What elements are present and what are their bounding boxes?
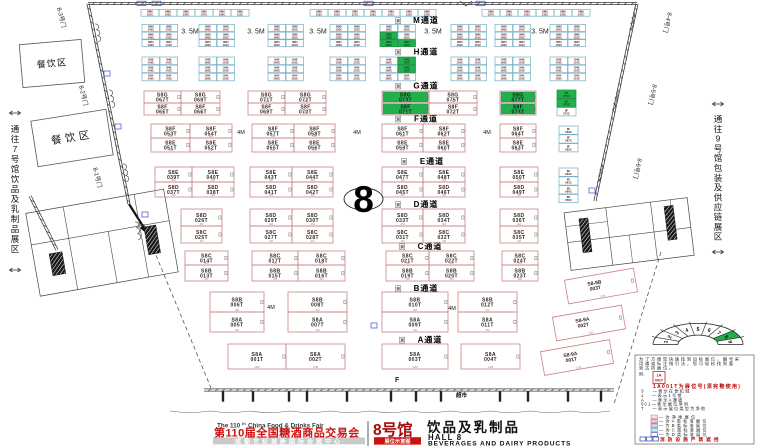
svg-text:4M: 4M	[517, 193, 522, 197]
svg-text:超市: 超市	[455, 391, 468, 399]
svg-text:150C: 150C	[555, 61, 562, 65]
svg-text:区: 区	[714, 232, 723, 242]
svg-text:4M: 4M	[271, 134, 276, 138]
svg-text:161C: 161C	[291, 28, 298, 32]
svg-text:190C: 190C	[204, 69, 211, 73]
svg-text:及: 及	[714, 183, 723, 193]
svg-text:展: 展	[11, 234, 20, 244]
svg-text:4M: 4M	[413, 328, 418, 332]
svg-text:190C: 190C	[204, 61, 211, 65]
svg-text:4M: 4M	[237, 130, 245, 136]
svg-text:141C: 141C	[165, 61, 172, 65]
svg-text:141C: 141C	[165, 43, 172, 47]
svg-text:150C: 150C	[555, 35, 562, 39]
svg-text:4M: 4M	[161, 99, 166, 103]
svg-text:181C: 181C	[403, 43, 410, 47]
svg-text:111C: 111C	[237, 13, 243, 17]
svg-text:4M: 4M	[442, 148, 447, 152]
svg-text:9: 9	[716, 134, 721, 144]
svg-text:181C: 181C	[403, 61, 410, 65]
svg-text:4M: 4M	[304, 111, 309, 115]
svg-text:001T: 001T	[251, 357, 264, 363]
svg-text:131C: 131C	[524, 13, 531, 17]
svg-text:150C: 150C	[555, 43, 562, 47]
svg-text:成都世纪城新国际会展中心: 成都世纪城新国际会展中心	[235, 437, 343, 445]
svg-text:D通道: D通道	[414, 199, 439, 209]
svg-text:119C: 119C	[370, 13, 377, 17]
svg-text:品: 品	[11, 184, 20, 194]
svg-text:121C: 121C	[388, 13, 395, 17]
svg-text:4M: 4M	[517, 178, 522, 182]
svg-text:160C: 160C	[273, 28, 280, 32]
svg-text:065C: 065C	[565, 147, 572, 151]
svg-text:到达的展位。: 到达的展位。	[639, 365, 675, 372]
svg-text:4M: 4M	[516, 99, 521, 103]
svg-text:1A: 1A	[656, 373, 661, 378]
svg-text:4M: 4M	[269, 239, 274, 243]
svg-text:4M: 4M	[404, 111, 409, 115]
svg-text:G通道: G通道	[413, 81, 438, 91]
svg-text:129C: 129C	[506, 13, 513, 17]
svg-text:191C: 191C	[518, 77, 525, 81]
svg-text:3. 5M: 3. 5M	[181, 29, 199, 36]
svg-text:190C: 190C	[204, 35, 211, 39]
svg-text:151C: 151C	[474, 77, 481, 81]
svg-text:4M: 4M	[211, 178, 216, 182]
svg-text:151C: 151C	[474, 43, 481, 47]
svg-text:150C: 150C	[456, 77, 463, 81]
svg-text:4M: 4M	[265, 111, 270, 115]
svg-text:4M: 4M	[172, 178, 177, 182]
svg-text:4M: 4M	[200, 222, 205, 226]
svg-text:191C: 191C	[222, 69, 229, 73]
svg-text:190C: 190C	[500, 77, 507, 81]
svg-text:181C: 181C	[403, 69, 410, 73]
svg-text:131C: 131C	[353, 77, 360, 81]
svg-text:3. 5M: 3. 5M	[247, 29, 265, 36]
svg-text:4M: 4M	[406, 277, 411, 281]
svg-text:131C: 131C	[353, 28, 360, 32]
svg-text:150C: 150C	[456, 28, 463, 32]
svg-text:4M: 4M	[516, 148, 521, 152]
svg-text:4M: 4M	[172, 193, 177, 197]
svg-text:4M: 4M	[517, 239, 522, 243]
svg-text:151C: 151C	[573, 43, 580, 47]
svg-text:4M: 4M	[517, 222, 522, 226]
svg-text:品: 品	[11, 224, 20, 234]
svg-text:190C: 190C	[204, 43, 211, 47]
svg-text:饮: 饮	[11, 174, 20, 184]
svg-text:装: 装	[714, 173, 723, 183]
svg-text:190C: 190C	[500, 28, 507, 32]
svg-text:131C: 131C	[353, 61, 360, 65]
svg-text:4M: 4M	[304, 99, 309, 103]
svg-text:190C: 190C	[500, 43, 507, 47]
svg-text:4M: 4M	[483, 130, 491, 136]
svg-text:4M: 4M	[450, 277, 455, 281]
svg-text:180C: 180C	[385, 43, 392, 47]
svg-text:113C: 113C	[316, 13, 323, 17]
svg-text:067C: 067C	[565, 139, 572, 143]
svg-text:069C: 069C	[565, 130, 572, 134]
svg-text:190C: 190C	[500, 35, 507, 39]
svg-text:160C: 160C	[273, 77, 280, 81]
svg-text:H通道: H通道	[414, 47, 439, 57]
svg-text:4M: 4M	[161, 111, 166, 115]
svg-text:4M: 4M	[267, 305, 275, 311]
svg-text:往: 往	[714, 124, 723, 134]
svg-text:4M: 4M	[311, 222, 316, 226]
svg-text:4M: 4M	[316, 328, 321, 332]
svg-text:151C: 151C	[573, 61, 580, 65]
svg-text:191C: 191C	[518, 61, 525, 65]
svg-text:4M: 4M	[199, 111, 204, 115]
svg-text:4M: 4M	[516, 111, 521, 115]
svg-text:第110届全国糖酒商品交易会: 第110届全国糖酒商品交易会	[214, 426, 360, 440]
svg-text:150C: 150C	[456, 43, 463, 47]
svg-text:5: 5	[697, 327, 700, 333]
svg-text:191C: 191C	[222, 43, 229, 47]
svg-text:馆: 馆	[11, 164, 20, 174]
svg-text:12M: 12M	[313, 365, 319, 369]
svg-text:058C: 058C	[565, 198, 572, 202]
svg-text:137C: 137C	[578, 13, 585, 17]
svg-text:4M: 4M	[311, 193, 316, 197]
svg-text:区: 区	[11, 244, 20, 254]
svg-text:130C: 130C	[335, 35, 342, 39]
svg-text:130C: 130C	[335, 28, 342, 32]
svg-text:131C: 131C	[353, 35, 360, 39]
svg-text:4M: 4M	[442, 193, 447, 197]
svg-text:往: 往	[11, 134, 20, 144]
svg-text:190C: 190C	[500, 61, 507, 65]
svg-text:190C: 190C	[204, 77, 211, 81]
svg-text:161C: 161C	[291, 77, 298, 81]
svg-text:135C: 135C	[560, 13, 567, 17]
svg-text:4M: 4M	[313, 134, 318, 138]
svg-text:133C: 133C	[542, 13, 549, 17]
svg-text:馆: 馆	[714, 153, 723, 163]
svg-text:8号馆: 8号馆	[373, 420, 413, 439]
svg-text:150C: 150C	[555, 28, 562, 32]
svg-text:063C: 063C	[565, 172, 572, 176]
svg-text:制: 制	[11, 214, 20, 224]
svg-text:150C: 150C	[456, 35, 463, 39]
svg-text:4M: 4M	[442, 134, 447, 138]
svg-text:4M: 4M	[269, 222, 274, 226]
svg-text:F: F	[395, 377, 400, 384]
svg-text:181C: 181C	[403, 28, 410, 32]
svg-text:3. 5M: 3. 5M	[309, 29, 327, 36]
svg-text:130C: 130C	[335, 69, 342, 73]
svg-text:及: 及	[11, 194, 20, 204]
svg-text:4M: 4M	[311, 239, 316, 243]
svg-text:150C: 150C	[555, 69, 562, 73]
svg-text:161C: 161C	[291, 69, 298, 73]
svg-text:131C: 131C	[353, 69, 360, 73]
svg-text:191C: 191C	[518, 28, 525, 32]
svg-text:7: 7	[13, 144, 18, 154]
svg-text:150C: 150C	[555, 77, 562, 81]
svg-text:001T: 001T	[655, 379, 664, 383]
svg-text:4M: 4M	[313, 148, 318, 152]
svg-text:191C: 191C	[222, 61, 229, 65]
svg-text:140C: 140C	[147, 35, 154, 39]
svg-text:例：: 例：	[639, 371, 647, 377]
svg-text:180C: 180C	[385, 28, 392, 32]
svg-text:151C: 151C	[573, 77, 580, 81]
svg-text:链: 链	[714, 212, 723, 222]
svg-text:th: th	[242, 421, 246, 426]
svg-text:151C: 151C	[474, 69, 481, 73]
svg-text:127C: 127C	[488, 13, 495, 17]
svg-text:141C: 141C	[165, 77, 172, 81]
svg-text:130C: 130C	[335, 61, 342, 65]
svg-text:002T: 002T	[309, 357, 322, 363]
svg-text:150C: 150C	[456, 61, 463, 65]
svg-text:供: 供	[714, 192, 723, 202]
svg-text:12M: 12M	[412, 365, 418, 369]
svg-text:通: 通	[11, 124, 20, 134]
svg-text:4M: 4M	[265, 99, 270, 103]
svg-text:151C: 151C	[474, 28, 481, 32]
svg-text:161C: 161C	[291, 61, 298, 65]
svg-text:4M: 4M	[269, 193, 274, 197]
svg-text:160C: 160C	[273, 35, 280, 39]
svg-text:180C: 180C	[385, 69, 392, 73]
svg-text:160C: 160C	[273, 43, 280, 47]
svg-text:4M: 4M	[271, 148, 276, 152]
svg-text:073C: 073C	[563, 103, 570, 107]
svg-text:4M: 4M	[451, 111, 456, 115]
svg-text:E通道: E通道	[420, 156, 444, 166]
svg-text:号: 号	[714, 143, 723, 153]
svg-text:4M: 4M	[311, 178, 316, 182]
svg-text:107C: 107C	[201, 13, 208, 17]
svg-text:117C: 117C	[352, 13, 359, 17]
svg-text:4M: 4M	[273, 277, 278, 281]
svg-text:181C: 181C	[403, 77, 410, 81]
svg-text:180C: 180C	[385, 77, 392, 81]
svg-text:4M: 4M	[205, 277, 210, 281]
svg-text:181C: 181C	[403, 35, 410, 39]
svg-text:号: 号	[11, 154, 20, 164]
svg-text:191C: 191C	[222, 28, 229, 32]
svg-text:191C: 191C	[518, 69, 525, 73]
svg-text:M通道: M通道	[413, 15, 439, 25]
svg-text:展: 展	[714, 222, 723, 232]
svg-text:包: 包	[714, 163, 723, 173]
svg-text:4M: 4M	[486, 328, 491, 332]
svg-text:4M: 4M	[516, 134, 521, 138]
svg-text:4M: 4M	[169, 148, 174, 152]
svg-text:4M: 4M	[200, 239, 205, 243]
svg-text:4M: 4M	[320, 277, 325, 281]
svg-text:3. 5M: 3. 5M	[531, 29, 549, 36]
svg-text:4M: 4M	[442, 239, 447, 243]
svg-text:3. 5M: 3. 5M	[424, 29, 442, 36]
svg-text:180C: 180C	[385, 35, 392, 39]
svg-text:乳: 乳	[11, 204, 20, 214]
svg-text:191C: 191C	[222, 77, 229, 81]
svg-text:4M: 4M	[235, 328, 240, 332]
svg-text:151C: 151C	[573, 28, 580, 32]
svg-text:130C: 130C	[335, 43, 342, 47]
svg-text:BEVERAGES AND DAIRY PRODUCTS: BEVERAGES AND DAIRY PRODUCTS	[428, 441, 571, 446]
svg-text:4M: 4M	[442, 178, 447, 182]
svg-text:115C: 115C	[334, 13, 341, 17]
svg-text:4M: 4M	[211, 193, 216, 197]
svg-text:展位示意图: 展位示意图	[385, 437, 411, 445]
svg-text:T —表示展位类型为净地: T —表示展位类型为净地	[641, 405, 706, 412]
svg-text:151C: 151C	[474, 61, 481, 65]
svg-text:004T: 004T	[484, 357, 497, 363]
svg-text:075C: 075C	[563, 94, 570, 98]
svg-text:4M: 4M	[448, 306, 456, 312]
svg-text:4M: 4M	[404, 99, 409, 103]
svg-text:A通道: A通道	[418, 335, 443, 345]
svg-text:191C: 191C	[518, 43, 525, 47]
svg-text:130C: 130C	[335, 77, 342, 81]
svg-text:4M: 4M	[209, 148, 214, 152]
svg-text:140C: 140C	[147, 43, 154, 47]
svg-text:141C: 141C	[165, 28, 172, 32]
svg-text:4M: 4M	[401, 222, 406, 226]
svg-text:160C: 160C	[273, 61, 280, 65]
svg-text:141C: 141C	[165, 69, 172, 73]
svg-text:180C: 180C	[385, 61, 392, 65]
svg-text:140C: 140C	[147, 69, 154, 73]
svg-text:141C: 141C	[165, 35, 172, 39]
svg-text:191C: 191C	[222, 35, 229, 39]
svg-text:123C: 123C	[406, 13, 413, 17]
svg-text:4M: 4M	[199, 99, 204, 103]
svg-text:151C: 151C	[474, 35, 481, 39]
svg-text:4M: 4M	[401, 148, 406, 152]
svg-text:003T: 003T	[409, 357, 422, 363]
svg-text:4M: 4M	[269, 178, 274, 182]
svg-text:151C: 151C	[573, 69, 580, 73]
svg-text:4M: 4M	[401, 134, 406, 138]
svg-text:4M: 4M	[353, 130, 361, 136]
svg-text:103C: 103C	[165, 13, 172, 17]
svg-text:191C: 191C	[518, 35, 525, 39]
svg-text:140C: 140C	[147, 28, 154, 32]
svg-text:105C: 105C	[183, 13, 190, 17]
svg-text:190C: 190C	[500, 69, 507, 73]
svg-text:060C: 060C	[565, 189, 572, 193]
svg-text:通: 通	[714, 114, 723, 124]
svg-text:4M: 4M	[401, 193, 406, 197]
svg-text:101C: 101C	[147, 13, 154, 17]
svg-text:140C: 140C	[147, 61, 154, 65]
svg-text:151C: 151C	[573, 35, 580, 39]
svg-text:4M: 4M	[442, 222, 447, 226]
svg-text:061C: 061C	[565, 181, 572, 185]
svg-text:150C: 150C	[456, 69, 463, 73]
svg-text:4M: 4M	[518, 277, 523, 281]
svg-text:109C: 109C	[219, 13, 226, 17]
svg-text:161C: 161C	[291, 43, 298, 47]
svg-text:161C: 161C	[291, 35, 298, 39]
svg-text:4M: 4M	[169, 134, 174, 138]
svg-text:应: 应	[714, 202, 723, 212]
svg-text:4M: 4M	[209, 134, 214, 138]
svg-text:4M: 4M	[451, 99, 456, 103]
svg-text:8: 8	[353, 179, 374, 220]
svg-text:12M: 12M	[254, 365, 260, 369]
svg-text:4M: 4M	[401, 239, 406, 243]
svg-text:131C: 131C	[353, 43, 360, 47]
svg-text:073C: 073C	[563, 112, 570, 116]
svg-text:190C: 190C	[204, 28, 211, 32]
svg-text:140C: 140C	[147, 77, 154, 81]
svg-text:12M: 12M	[488, 365, 494, 369]
svg-text:消防设施严禁遮挡: 消防设施严禁遮挡	[660, 436, 722, 443]
svg-text:160C: 160C	[273, 69, 280, 73]
svg-text:4M: 4M	[401, 178, 406, 182]
